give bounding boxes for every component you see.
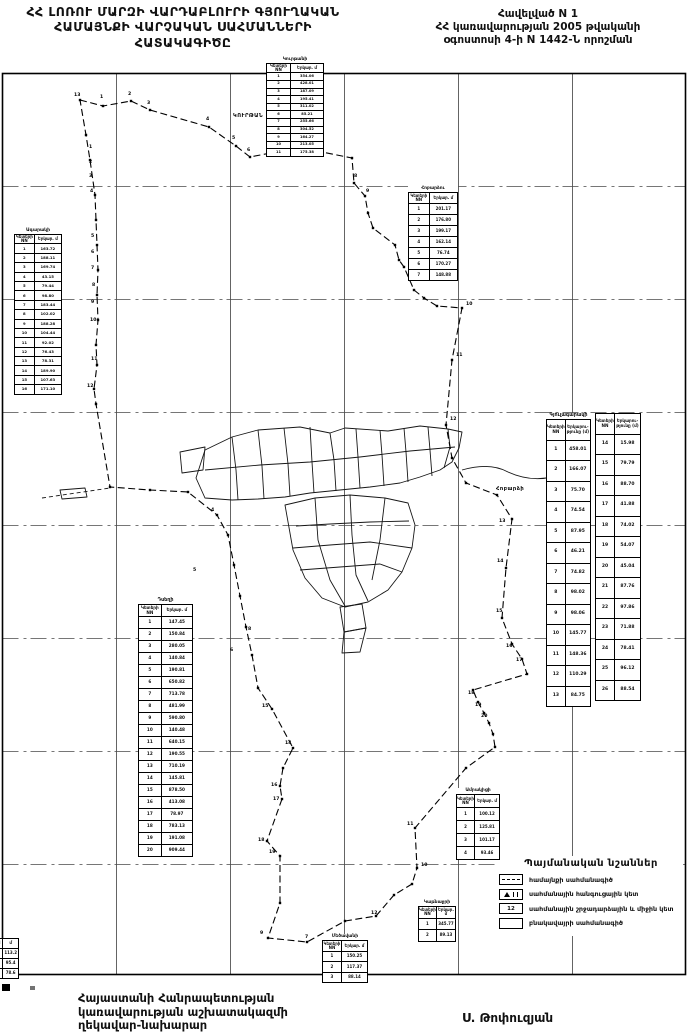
table-row: 14145.81 [139, 773, 193, 785]
table-title: Ագարակի [14, 228, 62, 233]
boundary-point-marker [292, 747, 294, 749]
boundary-point-label: 1 [100, 94, 103, 100]
table-header-cell: Կետերի NN [139, 605, 162, 617]
table-row: 9188.28 [15, 319, 62, 328]
point-number-cell: 25 [596, 660, 615, 681]
table-row: 6170.27 [409, 259, 458, 270]
boundary-point-label: 9 [366, 188, 369, 194]
table-header-cell: Երկար. մ [341, 941, 367, 952]
boundary-point-label: 1 [89, 144, 92, 150]
length-value-cell: 147.45 [161, 617, 192, 629]
length-value-cell: 255.66 [290, 118, 323, 126]
length-value-cell: 428.01 [290, 80, 323, 88]
table-header-cell: Երկարու- թյունը (մ) [614, 414, 640, 435]
length-value-cell: 71.88 [614, 619, 640, 640]
boundary-point-label: 5 [91, 233, 94, 239]
point-number-cell: 11 [139, 737, 162, 749]
boundary-point-label: 7 [305, 934, 308, 940]
boundary-point-marker [451, 457, 453, 459]
table-header-cell: Կետերի NN [596, 414, 615, 435]
signature-line2: կառավարության աշխատակազմի [78, 1006, 288, 1020]
length-value-cell: 345.77 [436, 918, 455, 930]
point-number-cell: 16 [15, 385, 35, 394]
point-number-cell: 14 [139, 773, 162, 785]
table-row: 1201.17 [409, 204, 458, 215]
boundary-point-marker [79, 99, 81, 101]
table-row: 8304.52 [267, 126, 324, 134]
table-row: 2125.81 [457, 821, 500, 834]
point-number-cell: 3 [409, 226, 430, 237]
node-point-sample-icon [499, 889, 523, 900]
length-value-cell: 45.04 [614, 557, 640, 578]
table-row: 2297.86 [596, 598, 641, 619]
table-title: Ամրակիցի [456, 788, 500, 793]
length-value-cell: 171.10 [34, 385, 61, 394]
point-number-cell: 5 [139, 665, 162, 677]
point-number-cell: 2 [323, 962, 342, 973]
point-number-cell: 7 [547, 563, 566, 584]
length-value-cell: 79.79 [614, 455, 640, 476]
boundary-point-label: 12 [450, 416, 456, 422]
length-value-cell: 98.02 [565, 584, 590, 605]
table-title: Գյուլագարակի [546, 413, 591, 418]
point-number-cell: 4 [15, 272, 35, 281]
table-header-cell: Երկար. մ [429, 193, 457, 204]
table-row: 3280.05 [139, 641, 193, 653]
boundary-point-marker [364, 195, 366, 197]
boundary-point-marker [266, 840, 268, 842]
table-row: 10140.48 [139, 725, 193, 737]
boundary-point-marker [465, 482, 467, 484]
table-row: 587.95 [547, 522, 591, 543]
legend-title: Պայմանական նշաններ [499, 858, 683, 869]
boundary-point-marker [267, 937, 269, 939]
point-number-cell: 1 [139, 617, 162, 629]
length-value-cell: 354.06 [290, 73, 323, 81]
table-row: 10213.05 [267, 141, 324, 149]
table-row: 5190.81 [139, 665, 193, 677]
boundary-point-marker [97, 319, 99, 321]
length-value-cell: 113.2 [3, 949, 19, 959]
legend-item-label: բնակավայրի սահմանագիծ [529, 919, 623, 927]
boundary-point-marker [251, 654, 253, 656]
point-number-cell: 14 [596, 434, 615, 455]
point-number-cell: 5 [547, 522, 566, 543]
boundary-point-label: 8 [354, 173, 357, 179]
boundary-point-label: 17 [516, 657, 522, 663]
length-value-cell: 590.80 [161, 713, 192, 725]
table-row: 2187.76 [596, 578, 641, 599]
point-number-cell: 3 [267, 88, 291, 96]
length-value-cell: 148.88 [429, 270, 457, 281]
length-value-cell: 76.74 [429, 248, 457, 259]
table-row: 9164.27 [267, 134, 324, 142]
boundary-point-label: 6 [247, 147, 250, 153]
legend-item-label: սահմանային հանգուցային կետ [529, 890, 638, 898]
boundary-point-marker [281, 798, 283, 800]
table-title: Հոբարձու [408, 186, 458, 191]
table-row: 2596.12 [596, 660, 641, 681]
length-value-cell: 46.21 [565, 543, 590, 564]
boundary-line-sample-icon [499, 874, 523, 885]
boundary-point-marker [109, 486, 111, 488]
table-row: 12110.29 [547, 666, 591, 687]
boundary-point-marker [351, 157, 353, 159]
table-row: 2117.37 [323, 962, 368, 973]
point-number-cell: 10 [139, 725, 162, 737]
boundary-point-label: 2 [128, 91, 131, 97]
boundary-point-marker [279, 902, 281, 904]
point-number-cell: 9 [547, 604, 566, 625]
point-number-cell: 12 [547, 666, 566, 687]
table-row: 7183.44 [15, 300, 62, 309]
length-value-cell: 74.54 [565, 502, 590, 523]
table-row: 443.15 [15, 272, 62, 281]
point-number-cell: 4 [267, 96, 291, 104]
table-row: 1579.79 [596, 455, 641, 476]
length-value-cell: 148.36 [565, 645, 590, 666]
point-number-cell: 1 [547, 440, 566, 461]
table-row: 16171.10 [15, 385, 62, 394]
length-value-cell: 150.25 [341, 951, 367, 962]
point-number-cell: 22 [596, 598, 615, 619]
table-header-row: Կետերի NNԵրկար. մ [419, 907, 456, 919]
table-header-row: Կետերի NNԵրկար. մ [15, 235, 62, 244]
boundary-point-label: 5 [232, 135, 235, 141]
boundary-point-marker [416, 867, 418, 869]
point-number-cell: 10 [267, 141, 291, 149]
point-number-cell: 1 [409, 204, 430, 215]
length-value-cell: 75.70 [565, 481, 590, 502]
boundary-point-marker [233, 564, 235, 566]
point-number-cell: 3 [139, 641, 162, 653]
point-number-cell: 18 [139, 821, 162, 833]
length-value-cell: 190.55 [161, 749, 192, 761]
point-number-cell: 6 [15, 291, 35, 300]
boundary-point-label: 10 [90, 317, 96, 323]
boundary-point-marker [436, 305, 438, 307]
length-value-cell: 87.76 [614, 578, 640, 599]
boundary-point-label: 4 [211, 507, 214, 513]
table-header-row: NNմ [0, 939, 19, 949]
point-number-cell: 6 [267, 111, 291, 119]
table-row: 1415.98 [596, 434, 641, 455]
boundary-point-label: 12 [87, 383, 93, 389]
point-number-cell: 13 [139, 761, 162, 773]
signatory-name: Ս. Թոփուզյան [462, 1011, 553, 1025]
boundary-point-label: 11 [407, 821, 413, 827]
point-number-cell: 2 [409, 215, 430, 226]
point-number-cell: 1 [419, 918, 437, 930]
point-number-cell: 21 [596, 578, 615, 599]
boundary-point-label: 8 [248, 626, 251, 632]
length-value-cell: 713.78 [161, 689, 192, 701]
boundary-point-label: 8 [92, 282, 95, 288]
length-value-cell: 89.13 [436, 930, 455, 942]
length-value-cell: 190.81 [161, 665, 192, 677]
length-value-cell: 145.81 [161, 773, 192, 785]
table-row: 295.4 [0, 959, 19, 969]
table-row: 685.21 [267, 111, 324, 119]
length-value-cell: 783.13 [161, 821, 192, 833]
length-value-cell: 78.31 [34, 357, 61, 366]
table-row: 774.82 [547, 563, 591, 584]
point-number-cell: 2 [419, 930, 437, 942]
boundary-point-marker [235, 145, 237, 147]
boundary-point-label: 9 [260, 930, 263, 936]
table-header-cell: Կետերի NN [419, 907, 437, 919]
point-number-cell: 7 [267, 118, 291, 126]
length-value-cell: 163.72 [34, 244, 61, 253]
length-value-cell: 92.02 [34, 338, 61, 347]
length-value-cell: 189.90 [34, 366, 61, 375]
boundary-point-marker [398, 259, 400, 261]
length-value-cell: 95.4 [3, 959, 19, 969]
length-value-cell: 191.08 [161, 833, 192, 845]
table-row: 1354.06 [267, 73, 324, 81]
point-number-cell: 15 [596, 455, 615, 476]
boundary-point-marker [344, 920, 346, 922]
point-number-cell: 19 [139, 833, 162, 845]
coordinate-table-t5b: Կետերի NNԵրկարու- թյունը (մ)1415.981579.… [595, 413, 641, 701]
length-value-cell: 93.46 [475, 847, 500, 860]
boundary-point-marker [149, 489, 151, 491]
table-row: 579.44 [15, 281, 62, 290]
length-value-cell: 166.07 [565, 461, 590, 482]
coordinate-table-t6: ԱմրակիցիԿետերի NNԵրկար. մ1100.122125.813… [456, 788, 500, 860]
boundary-point-label: 13 [499, 518, 505, 524]
length-value-cell: 97.86 [614, 598, 640, 619]
table-row: 4140.84 [139, 653, 193, 665]
point-number-cell: 11 [15, 338, 35, 347]
boundary-point-label: 17 [273, 796, 279, 802]
table-header-cell: Երկար. մ [34, 235, 61, 244]
length-value-cell: 195.41 [290, 96, 323, 104]
table-title: Մեծավանի [322, 934, 368, 939]
point-number-cell: 16 [139, 797, 162, 809]
neighbor-community-label: Հոբարձի [496, 486, 524, 492]
point-number-cell: 2 [139, 629, 162, 641]
boundary-point-marker [423, 297, 425, 299]
point-number-cell: 8 [547, 584, 566, 605]
table-row: 2371.88 [596, 619, 641, 640]
signature-block: Հայաստանի Հանրապետության կառավարության ա… [78, 992, 288, 1033]
boundary-point-label: 14 [285, 740, 291, 746]
coordinate-table-t5a: ԳյուլագարակիԿետերի NNԵրկարու- թյունը (մ)… [546, 413, 591, 707]
point-number-cell: 4 [139, 653, 162, 665]
signature-line3: ղեկավար-նախարար [78, 1019, 288, 1033]
boundary-point-marker [505, 567, 507, 569]
settlement-line-sample-icon [499, 918, 523, 929]
length-value-cell: 15.98 [614, 434, 640, 455]
point-number-cell: 20 [596, 557, 615, 578]
table-row: 13710.19 [139, 761, 193, 773]
point-number-cell: 11 [547, 645, 566, 666]
table-row: 2478.41 [596, 639, 641, 660]
table-row: 2176.80 [409, 215, 458, 226]
length-value-cell: 41.88 [614, 496, 640, 517]
coordinate-table-t9: NNմ1113.2295.4378.6 [0, 938, 19, 979]
table-row: 378.6 [0, 969, 19, 979]
point-number-cell: 3 [457, 834, 475, 847]
table-row: 998.06 [547, 604, 591, 625]
boundary-point-marker [494, 746, 496, 748]
length-value-cell: 104.44 [34, 328, 61, 337]
boundary-point-marker [496, 494, 498, 496]
boundary-point-marker [306, 941, 308, 943]
boundary-point-marker [96, 364, 98, 366]
length-value-cell: 169.74 [34, 263, 61, 272]
point-number-cell: 8 [267, 126, 291, 134]
table-row: 1741.88 [596, 496, 641, 517]
boundary-point-marker [445, 424, 447, 426]
length-value-cell: 107.63 [34, 375, 61, 384]
length-value-cell: 76.43 [34, 347, 61, 356]
table-row: 4195.41 [267, 96, 324, 104]
point-number-cell: 20 [139, 845, 162, 857]
signature-line1: Հայաստանի Հանրապետության [78, 992, 288, 1006]
table-row: 1147.45 [139, 617, 193, 629]
length-value-cell: 188.28 [34, 319, 61, 328]
point-number-cell: 1 [457, 808, 475, 821]
legend-item-label: սահմանային շրջադարձային և միջին կետ [529, 905, 674, 913]
coordinate-table-t1: ԿուրթանիԿետերի NNԵրկար. մ1354.062428.013… [266, 57, 324, 157]
table-header-cell: Երկարու- թյունը (մ) [565, 420, 590, 441]
point-number-cell: 13 [15, 357, 35, 366]
point-number-cell: 1 [15, 244, 35, 253]
table-row: 7713.78 [139, 689, 193, 701]
length-value-cell: 98.06 [565, 604, 590, 625]
boundary-point-marker [488, 722, 490, 724]
table-row: 11148.36 [547, 645, 591, 666]
table-header-cell: Երկար. մ [475, 795, 500, 808]
point-number-cell: 17 [596, 496, 615, 517]
length-value-cell: 140.48 [161, 725, 192, 737]
boundary-point-marker [271, 708, 273, 710]
table-header-row: Կետերի NNԵրկարու- թյունը (մ) [596, 414, 641, 435]
table-row: 3187.09 [267, 88, 324, 96]
table-row: 2166.07 [547, 461, 591, 482]
point-number-cell: 10 [15, 328, 35, 337]
table-header-cell: Երկար. մ [161, 605, 192, 617]
length-value-cell: 85.21 [290, 111, 323, 119]
length-value-cell: 710.19 [161, 761, 192, 773]
point-number-cell: 2 [267, 80, 291, 88]
legend-item-label: համայնքի սահմանագիծ [529, 876, 613, 884]
boundary-point-label: 4 [206, 116, 209, 122]
turn-point-sample-icon: 12 [499, 903, 523, 914]
coordinate-table-t2: ՀոբարձուԿետերի NNԵրկար. մ1201.172176.803… [408, 186, 458, 281]
table-row: 15107.63 [15, 375, 62, 384]
table-row: 1384.75 [547, 686, 591, 707]
boundary-point-marker [216, 514, 218, 516]
boundary-point-label: 9 [91, 299, 94, 305]
table-row: 1276.43 [15, 347, 62, 356]
boundary-point-marker [208, 126, 210, 128]
point-number-cell: 9 [15, 319, 35, 328]
table-header-row: Կետերի NNԵրկար. մ [409, 193, 458, 204]
table-header-row: Կետերի NNԵրկար. մ [457, 795, 500, 808]
length-value-cell: 183.44 [34, 300, 61, 309]
length-value-cell: 88.14 [341, 972, 367, 983]
boundary-point-marker [95, 219, 97, 221]
table-row: 20909.44 [139, 845, 193, 857]
point-number-cell: 15 [15, 375, 35, 384]
length-value-cell: 101.17 [475, 834, 500, 847]
point-number-cell: 17 [139, 809, 162, 821]
boundary-point-label: 19 [475, 702, 481, 708]
point-number-cell: 3 [547, 481, 566, 502]
boundary-point-marker [96, 294, 98, 296]
table-row: 474.54 [547, 502, 591, 523]
boundary-point-marker [394, 244, 396, 246]
table-row: 16413.08 [139, 797, 193, 809]
boundary-point-label: 12 [371, 910, 377, 916]
table-header-cell: Կետերի NN [15, 235, 35, 244]
length-value-cell: 213.05 [290, 141, 323, 149]
table-row: 19191.08 [139, 833, 193, 845]
table-row: 646.21 [547, 543, 591, 564]
table-row: 7255.66 [267, 118, 324, 126]
boundary-point-marker [95, 344, 97, 346]
length-value-cell: 78.6 [3, 969, 19, 979]
length-value-cell: 164.27 [290, 134, 323, 142]
coordinate-table-t3: ԱգարակիԿետերի NNԵրկար. մ1163.722188.1131… [14, 228, 62, 395]
boundary-point-marker [511, 518, 513, 520]
table-row: 10104.44 [15, 328, 62, 337]
table-row: 3199.17 [409, 226, 458, 237]
boundary-point-label: 10 [421, 862, 427, 868]
boundary-point-label: 3 [147, 100, 150, 106]
table-header-cell: Կետերի NN [457, 795, 475, 808]
point-number-cell: 5 [15, 281, 35, 290]
table-row: 3101.17 [457, 834, 500, 847]
length-value-cell: 74.82 [565, 563, 590, 584]
length-value-cell: 304.52 [290, 126, 323, 134]
table-row: 4162.14 [409, 237, 458, 248]
table-row: 1378.31 [15, 357, 62, 366]
table-row: 2188.11 [15, 253, 62, 262]
table-row: 7148.88 [409, 270, 458, 281]
table-header-cell: Կետերի NN [547, 420, 566, 441]
table-row: 375.70 [547, 481, 591, 502]
point-number-cell: 18 [596, 516, 615, 537]
point-number-cell: 1 [323, 951, 342, 962]
point-number-cell: 3 [15, 263, 35, 272]
boundary-point-marker [130, 100, 132, 102]
table-row: 2428.01 [267, 80, 324, 88]
table-header-cell: Երկար. մ [436, 907, 455, 919]
scan-artifact [30, 986, 35, 990]
boundary-point-marker [465, 767, 467, 769]
boundary-point-marker [411, 883, 413, 885]
table-row: 576.74 [409, 248, 458, 259]
table-row: 3169.74 [15, 263, 62, 272]
table-row: 1113.2 [0, 949, 19, 959]
point-number-cell: 24 [596, 639, 615, 660]
length-value-cell: 458.01 [565, 440, 590, 461]
point-number-cell: 1 [267, 73, 291, 81]
point-number-cell: 5 [267, 103, 291, 111]
point-number-cell: 9 [139, 713, 162, 725]
table-row: 1345.77 [419, 918, 456, 930]
boundary-point-label: 10 [466, 301, 472, 307]
point-number-cell: 5 [409, 248, 430, 259]
boundary-point-marker [245, 626, 247, 628]
length-value-cell: 311.02 [290, 103, 323, 111]
table-row: 1100.12 [457, 808, 500, 821]
boundary-point-marker [279, 855, 281, 857]
